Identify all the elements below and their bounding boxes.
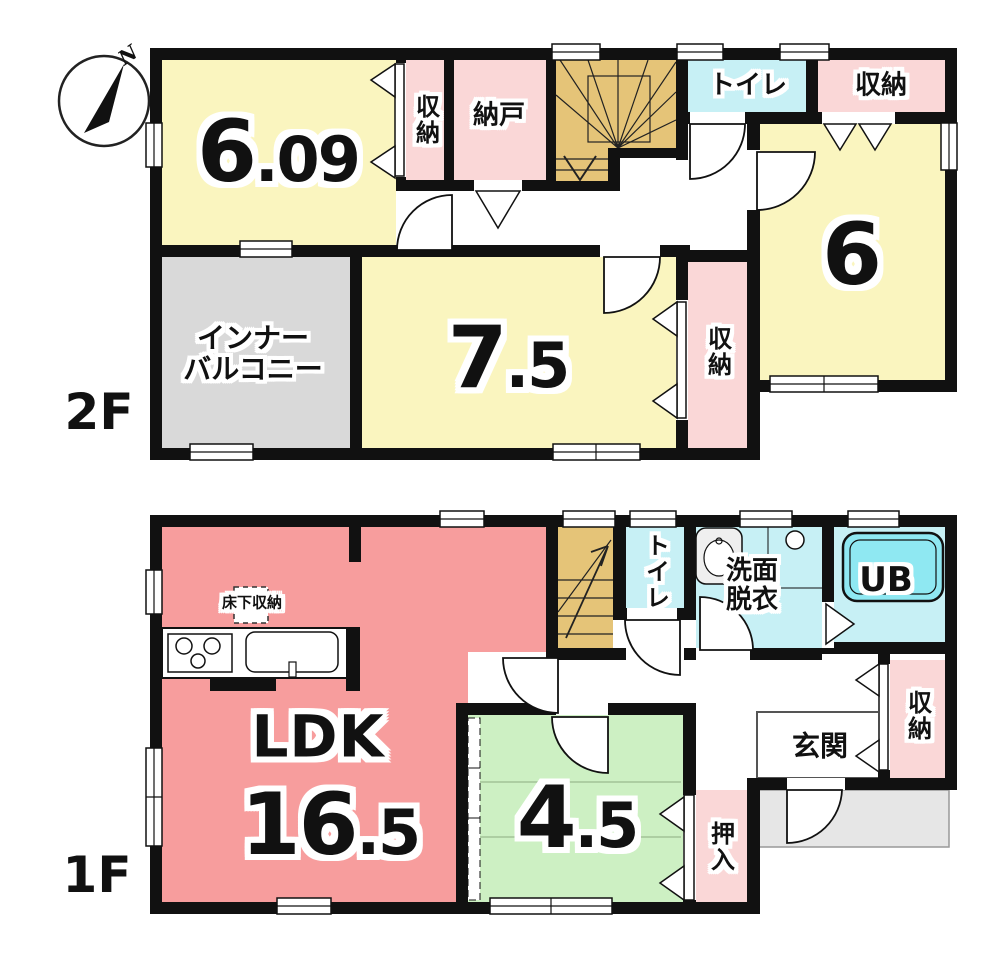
label-unit-bath: UB [859, 561, 913, 599]
room-area-6: 6 [822, 207, 880, 303]
label-toilet-2f: トイレ [709, 71, 787, 100]
label-closet-east-1f: 収納 [904, 690, 931, 742]
sliding-door-ldk-45 [468, 718, 480, 900]
room-area-6-09: 6.09 [197, 104, 359, 200]
room-area-4-5: 4.5 [517, 770, 638, 866]
compass-icon [59, 56, 149, 146]
floor-label-1f: 1F [63, 847, 132, 903]
floorplan-drawing [0, 0, 1000, 965]
floor-label-2f: 2F [65, 384, 134, 440]
inner-balcony-line2: バルコニー [183, 354, 322, 385]
label-closet-west-2f: 収納 [412, 94, 439, 146]
inner-balcony-line1: インナー [183, 323, 322, 354]
label-oshiire: 押入 [707, 821, 734, 873]
kitchen-counter [162, 628, 350, 678]
entrance-porch [757, 790, 949, 847]
label-ldk: LDK [251, 705, 384, 770]
label-toilet-1f: トイレ [642, 533, 669, 611]
label-closet-center-2f: 収納 [704, 326, 731, 378]
floorplan-canvas: N 2F 6.09 収納 納戸 トイレ 収納 6 収納 7.5 インナー バルコ… [0, 0, 1000, 965]
label-entrance: 玄関 [792, 730, 848, 761]
room-area-16-5: 16.5 [241, 777, 419, 873]
room-area-7-5: 7.5 [448, 310, 569, 406]
washer-icon [786, 531, 804, 549]
label-inner-balcony: インナー バルコニー [183, 323, 322, 386]
label-washroom: 洗面 脱衣 [726, 557, 778, 615]
label-closet-northeast-2f: 収納 [855, 71, 907, 100]
washroom-line2: 脱衣 [726, 586, 778, 615]
label-underfloor-storage: 床下収納 [222, 595, 282, 612]
washroom-line1: 洗面 [726, 557, 778, 586]
stove-icon [168, 634, 232, 672]
stairs-1f [558, 527, 613, 648]
label-storeroom: 納戸 [473, 101, 525, 130]
